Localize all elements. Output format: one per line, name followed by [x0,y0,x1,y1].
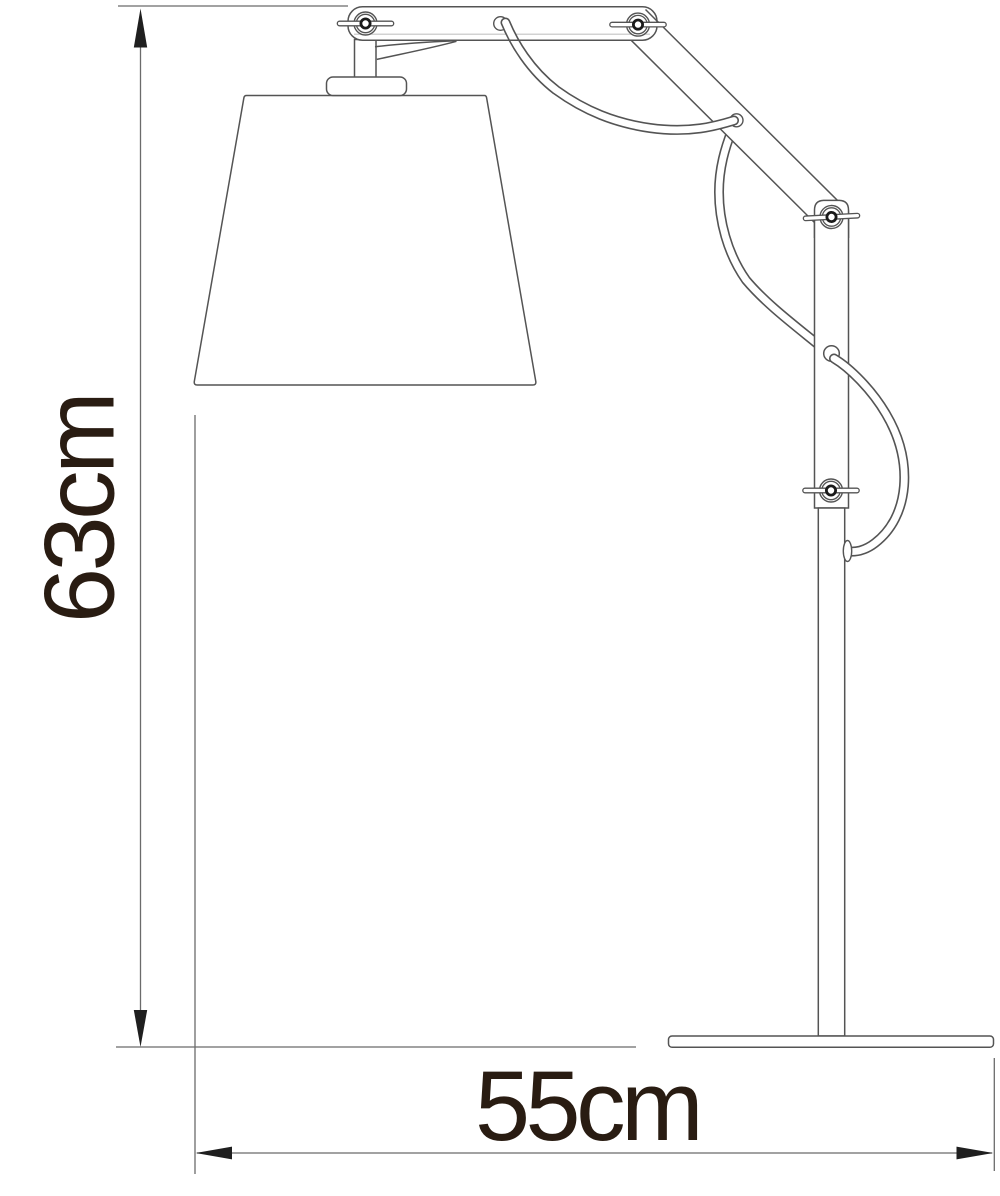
svg-text:55cm: 55cm [475,1050,699,1161]
svg-text:63cm: 63cm [24,395,135,623]
